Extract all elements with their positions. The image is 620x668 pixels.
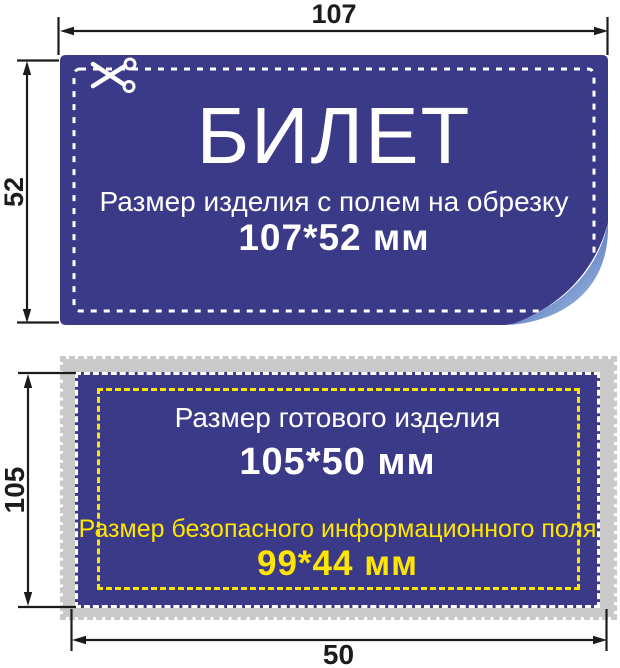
bottom-card-height-dimension-label: 105 <box>0 466 35 514</box>
safe-area-value: 99*44 мм <box>75 544 600 584</box>
bottom-card-width-dimension-label: 50 <box>60 641 617 668</box>
top-card-height-dimension-label: 52 <box>0 168 34 216</box>
finished-size-caption: Размер готового изделия <box>75 402 600 434</box>
safe-area-caption: Размер безопасного информационного поля <box>75 514 600 544</box>
top-width-dimension-label: 107 <box>60 0 608 28</box>
bleed-size-value: 107*52 мм <box>60 216 608 260</box>
ticket-title: БИЛЕТ <box>60 96 608 176</box>
print-spec-diagram: 107 БИЛЕТ Размер изделия с полем на обре… <box>0 0 620 668</box>
finished-size-value: 105*50 мм <box>75 440 600 484</box>
bleed-size-caption: Размер изделия с полем на обрезку <box>60 186 608 218</box>
